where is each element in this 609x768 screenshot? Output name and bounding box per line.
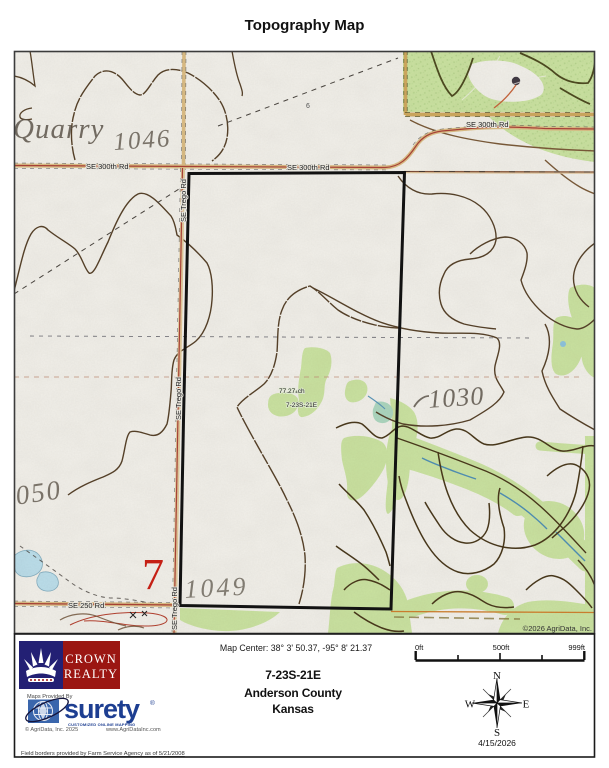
- svg-text:E: E: [523, 699, 530, 711]
- svg-text:500ft: 500ft: [493, 643, 511, 652]
- svg-text:CROWN: CROWN: [65, 652, 117, 666]
- svg-text:®: ®: [150, 699, 155, 707]
- svg-text:7-23S-21E: 7-23S-21E: [265, 668, 321, 682]
- svg-text:© AgriData, Inc. 2025: © AgriData, Inc. 2025: [25, 726, 78, 733]
- svg-text:Kansas: Kansas: [272, 702, 314, 716]
- svg-text:999ft: 999ft: [568, 643, 586, 652]
- svg-text:Map Center: 38° 3' 50.37, -95: Map Center: 38° 3' 50.37, -95° 8' 21.37: [220, 643, 372, 653]
- svg-text:4/15/2026: 4/15/2026: [478, 738, 516, 748]
- svg-text:Anderson County: Anderson County: [244, 686, 342, 700]
- svg-text:Field borders provided by Farm: Field borders provided by Farm Service A…: [21, 751, 185, 757]
- svg-text:REALTY: REALTY: [64, 667, 118, 681]
- svg-text:N: N: [493, 670, 501, 682]
- svg-text:W: W: [465, 699, 476, 711]
- svg-text:0ft: 0ft: [415, 643, 424, 652]
- svg-text:surety: surety: [64, 694, 140, 724]
- svg-text:www.AgriDataInc.com: www.AgriDataInc.com: [105, 727, 161, 733]
